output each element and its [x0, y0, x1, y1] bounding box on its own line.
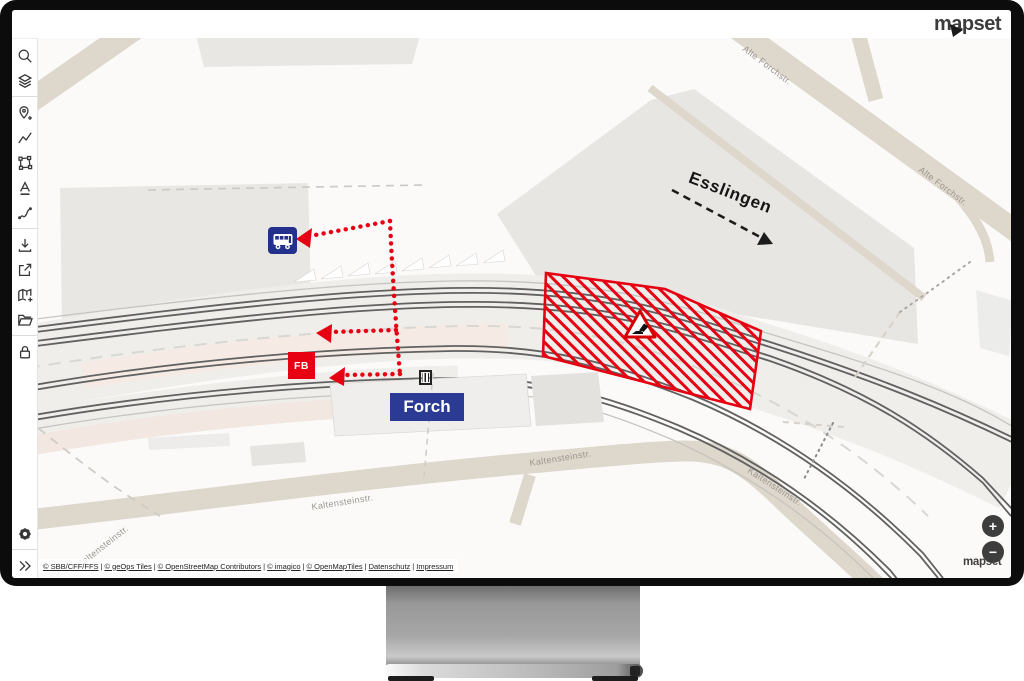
sidebar-divider [12, 549, 37, 550]
page: mapset [0, 0, 1024, 681]
sidebar-tool-draw-route[interactable] [13, 201, 37, 224]
base-map: Alte Forchstr. Alte Forchstr. Kaltenstei… [38, 38, 1011, 578]
bus-stop-marker[interactable] [268, 227, 297, 254]
station-buildings [330, 372, 604, 436]
layers-icon [17, 73, 33, 89]
attribution-link-imagico[interactable]: © imagico [261, 562, 300, 571]
zoom-in-button[interactable]: + [982, 515, 1004, 537]
map-canvas[interactable]: Alte Forchstr. Alte Forchstr. Kaltenstei… [38, 38, 1011, 578]
attribution-bar: © SBB/CFF/FFS © geOps Tiles © OpenStreet… [38, 559, 458, 573]
sidebar-tool-add-location[interactable] [13, 101, 37, 124]
forch-station-label[interactable]: Forch [390, 393, 464, 421]
sidebar-tool-layers[interactable] [13, 69, 37, 92]
sidebar-tool-search[interactable] [13, 44, 37, 67]
attribution-link-geops[interactable]: © geOps Tiles [99, 562, 152, 571]
sidebar-tool-download[interactable] [13, 233, 37, 256]
attribution-link-datenschutz[interactable]: Datenschutz [363, 562, 411, 571]
sidebar-divider [12, 96, 37, 97]
toolbar-sidebar [12, 38, 38, 578]
share-icon [17, 262, 33, 278]
attribution-link-impressum[interactable]: Impressum [410, 562, 453, 571]
lock-icon [17, 344, 33, 360]
double-chevron-icon [17, 558, 33, 574]
polygon-icon [17, 155, 33, 171]
app-header: mapset [12, 10, 1011, 38]
mapset-logo: mapset [934, 13, 1001, 36]
mapset-watermark: mapset [963, 556, 1001, 568]
attribution-link-osm[interactable]: © OpenStreetMap Contributors [152, 562, 261, 571]
polyline-icon [17, 130, 33, 146]
curve-icon [17, 205, 33, 221]
station-entrance-icon [419, 370, 432, 385]
sidebar-tool-expand[interactable] [13, 554, 37, 577]
monitor-stand-neck [386, 586, 640, 666]
sidebar-tool-add-text[interactable] [13, 176, 37, 199]
monitor-stand-nub [630, 666, 640, 676]
sidebar-tool-open-folder[interactable] [13, 308, 37, 331]
download-icon [17, 237, 33, 253]
sidebar-tool-lock[interactable] [13, 340, 37, 363]
search-icon [17, 48, 33, 64]
sidebar-tool-settings[interactable] [13, 522, 37, 545]
attribution-link-openmaptiles[interactable]: © OpenMapTiles [301, 562, 363, 571]
sidebar-tool-draw-line[interactable] [13, 126, 37, 149]
pin-plus-icon [17, 105, 33, 121]
folder-icon [17, 312, 33, 328]
sidebar-divider [12, 228, 37, 229]
sidebar-divider [12, 335, 37, 336]
sidebar-tool-draw-polygon[interactable] [13, 151, 37, 174]
map-plus-icon [17, 287, 33, 303]
monitor-foot-left [388, 676, 434, 681]
gear-icon [17, 526, 33, 542]
fb-marker[interactable]: FB [288, 352, 315, 379]
app-window: mapset [12, 10, 1011, 578]
partial-arrowhead-annotation[interactable] [948, 24, 964, 40]
monitor-foot-right [592, 676, 638, 681]
sidebar-tool-export[interactable] [13, 258, 37, 281]
sidebar-tool-add-map[interactable] [13, 283, 37, 306]
attribution-link-sbb[interactable]: © SBB/CFF/FFS [43, 562, 99, 571]
text-icon [17, 180, 33, 196]
bus-icon [271, 229, 295, 253]
